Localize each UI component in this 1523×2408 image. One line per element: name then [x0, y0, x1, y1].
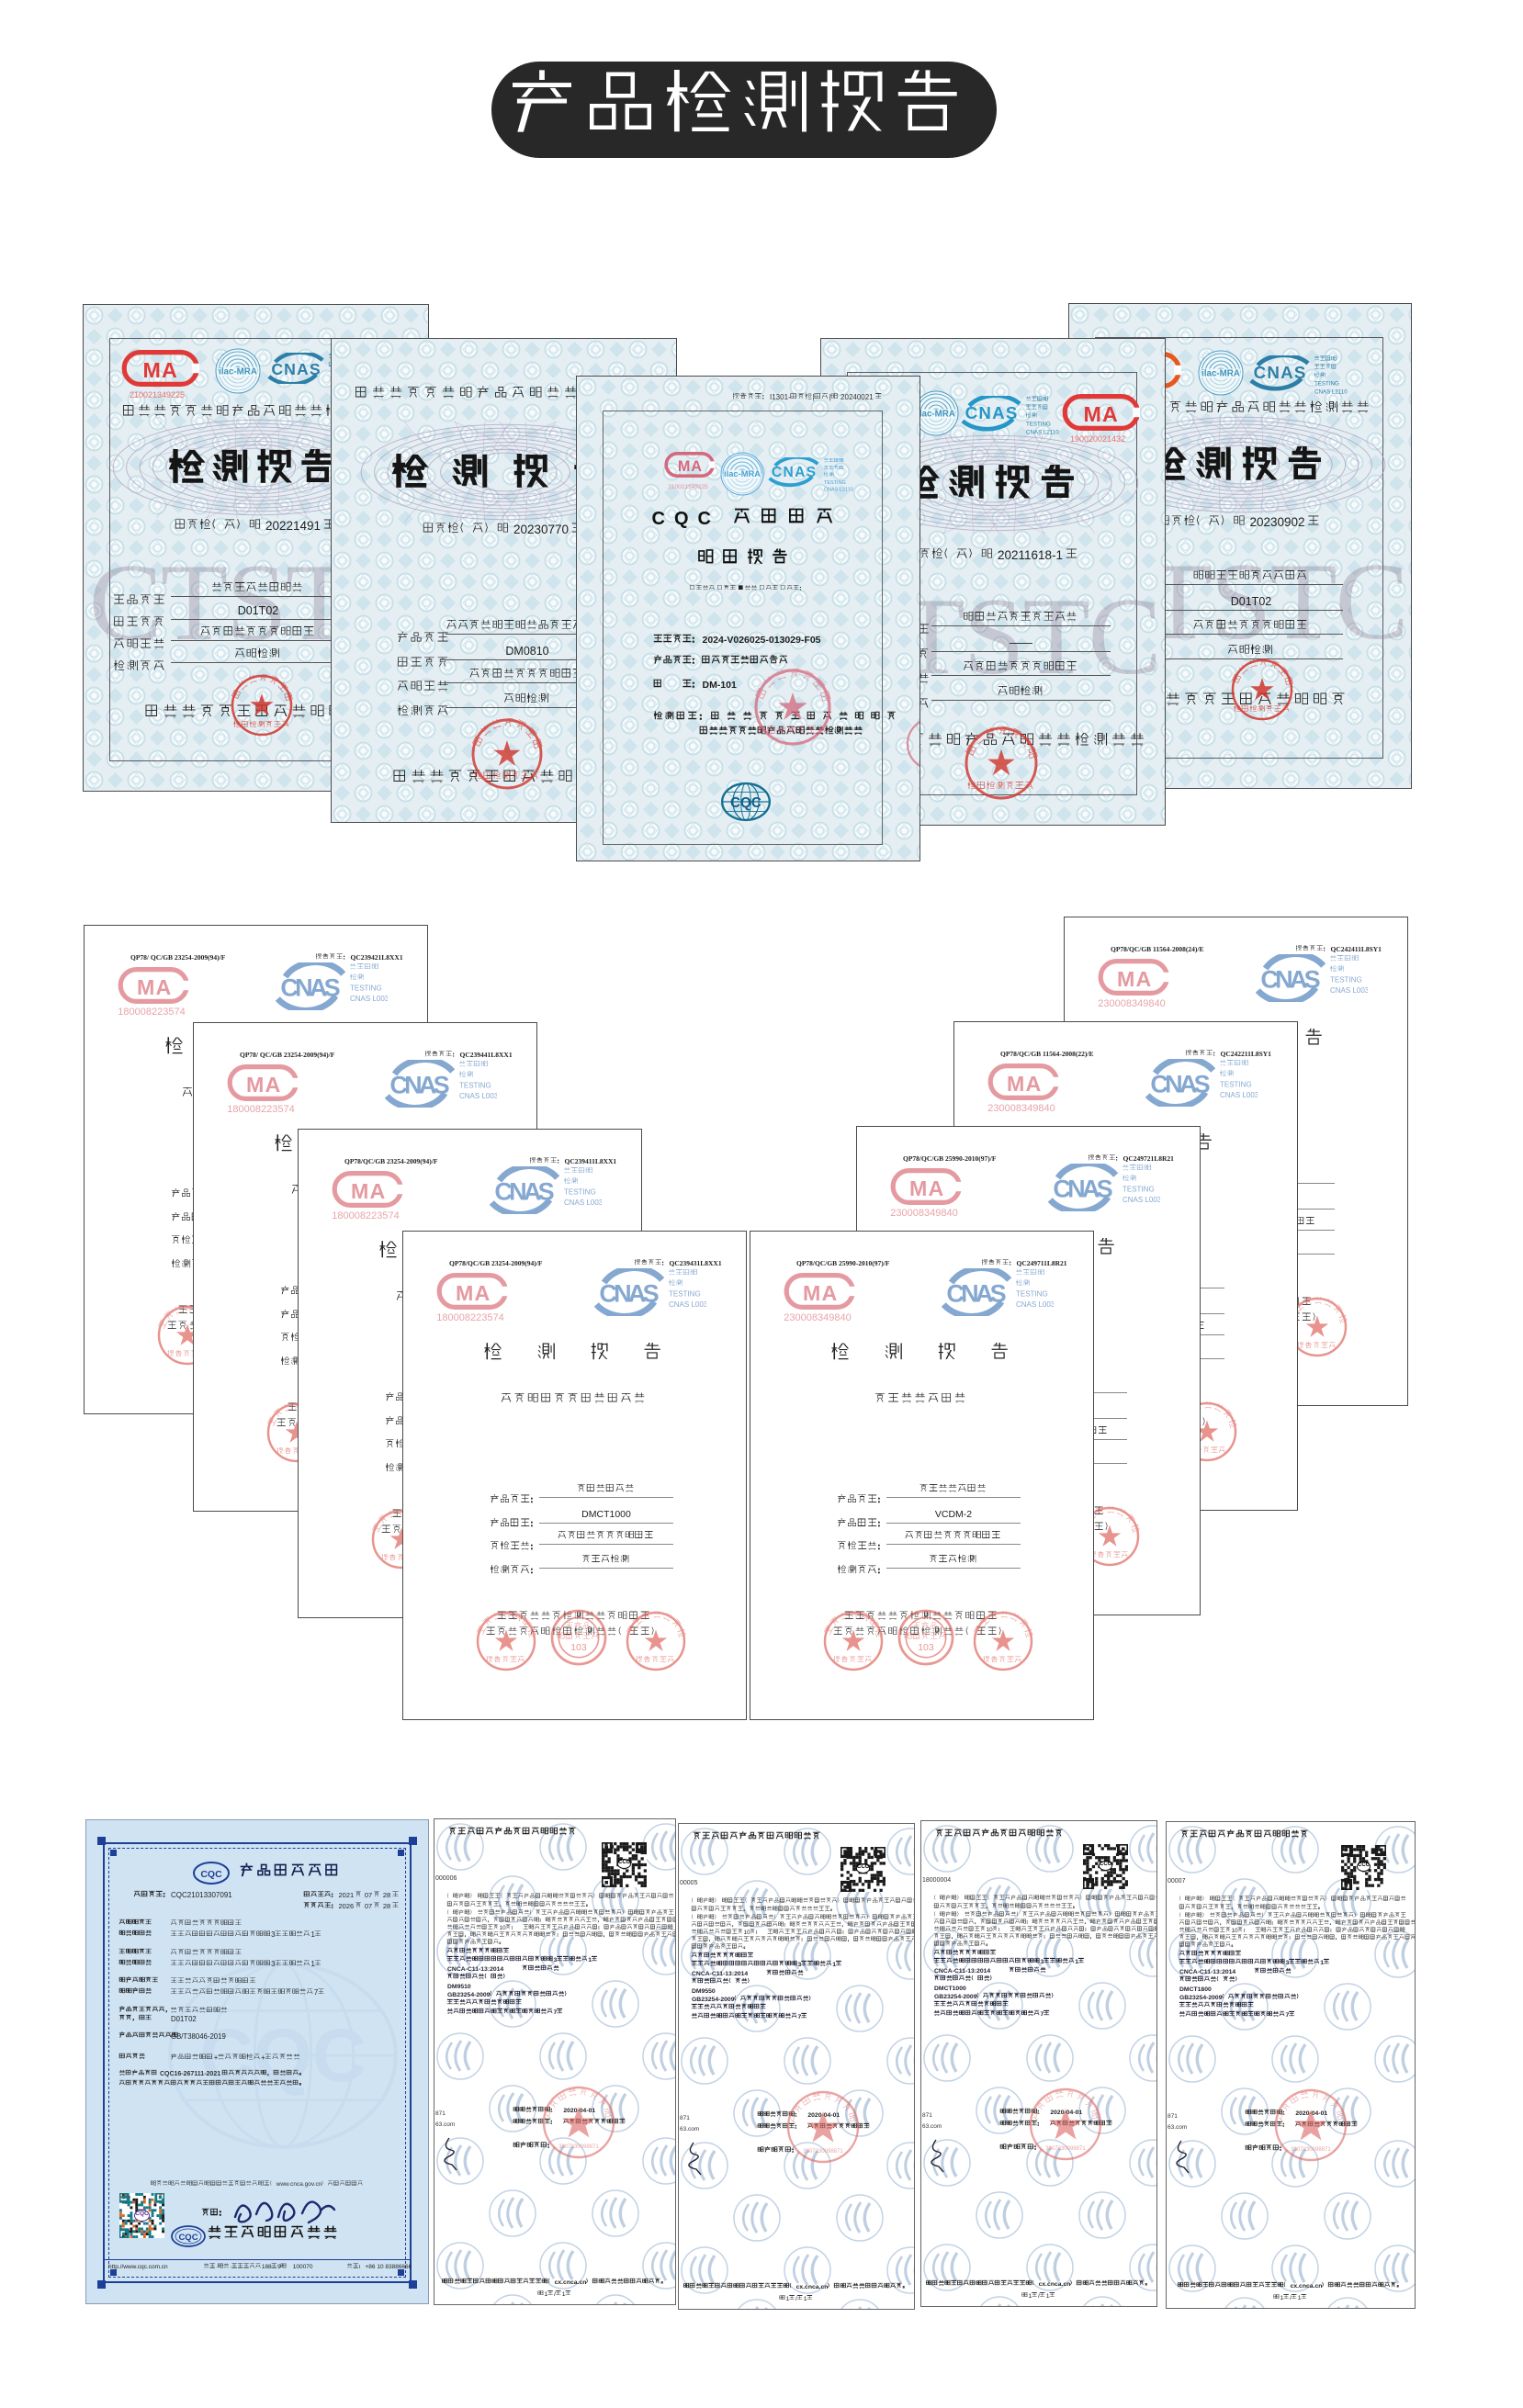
svg-text:180008223574: 180008223574 — [332, 1210, 399, 1221]
svg-text:中国认可: 中国认可 — [564, 1167, 593, 1175]
svg-text:TESTING: TESTING — [1026, 422, 1051, 427]
svg-text:MA: MA — [137, 975, 172, 999]
svg-text:检测: 检测 — [1123, 1174, 1137, 1182]
svg-text:230008349840: 230008349840 — [784, 1312, 851, 1323]
svg-text:MA: MA — [803, 1281, 838, 1305]
svg-text:检测: 检测 — [1025, 412, 1037, 419]
svg-text:检测: 检测 — [350, 973, 365, 981]
svg-text:TESTING: TESTING — [459, 1082, 491, 1089]
svg-text:MA: MA — [456, 1281, 491, 1305]
svg-text:CNAS L2110: CNAS L2110 — [1314, 388, 1348, 394]
svg-text:检测: 检测 — [1314, 372, 1326, 378]
svg-text:CNAS L0036: CNAS L0036 — [1330, 986, 1368, 994]
svg-text:检测: 检测 — [1220, 1069, 1235, 1077]
svg-text:103: 103 — [570, 1642, 587, 1653]
svg-text:210021349225: 210021349225 — [130, 390, 185, 399]
svg-text:CNAS: CNAS — [280, 973, 340, 1001]
svg-text:CNAS: CNAS — [1260, 965, 1320, 993]
svg-text:TESTING: TESTING — [669, 1290, 701, 1298]
svg-text:CNAS L0036: CNAS L0036 — [564, 1198, 602, 1206]
svg-text:180008223574: 180008223574 — [118, 1007, 185, 1018]
svg-text:CNAS: CNAS — [1254, 363, 1306, 382]
svg-text:国际互认: 国际互认 — [1314, 364, 1337, 370]
svg-text:3307230098871: 3307230098871 — [1045, 2146, 1086, 2152]
svg-text:TESTING: TESTING — [1314, 381, 1339, 387]
svg-text:TESTING: TESTING — [1220, 1081, 1252, 1088]
svg-text:TESTING: TESTING — [1330, 976, 1362, 984]
svg-text:CNAS: CNAS — [1150, 1070, 1210, 1097]
svg-text:中国认可: 中国认可 — [1123, 1165, 1152, 1172]
svg-text:中国认可: 中国认可 — [1220, 1060, 1249, 1067]
svg-text:中国认可: 中国认可 — [350, 963, 379, 971]
svg-text:试验专用章: 试验专用章 — [904, 1631, 948, 1641]
svg-text:检测: 检测 — [1330, 964, 1345, 973]
svg-text:中国认可: 中国认可 — [1314, 355, 1337, 362]
svg-text:3307230098871: 3307230098871 — [558, 2144, 599, 2150]
svg-text:检测: 检测 — [564, 1176, 579, 1185]
svg-text:CNAS L0036: CNAS L0036 — [1016, 1300, 1054, 1308]
svg-text:CNAS: CNAS — [389, 1071, 449, 1098]
svg-text:MA: MA — [351, 1179, 386, 1203]
svg-text:3307230098871: 3307230098871 — [1291, 2147, 1331, 2153]
svg-text:检验检测专用章: 检验检测专用章 — [757, 726, 828, 737]
svg-text:MA: MA — [1007, 1072, 1042, 1096]
svg-text:MA: MA — [678, 458, 703, 475]
svg-text:210021349225: 210021349225 — [668, 484, 708, 490]
svg-text:CNAS: CNAS — [599, 1279, 659, 1307]
svg-text:检测: 检测 — [1016, 1278, 1031, 1287]
svg-text:ilac-MRA: ilac-MRA — [219, 366, 257, 377]
svg-text:230008349840: 230008349840 — [890, 1208, 957, 1219]
svg-text:ilac-MRA: ilac-MRA — [917, 409, 955, 419]
svg-text:国际互认: 国际互认 — [1025, 404, 1049, 411]
svg-text:检验检测专用章: 检验检测专用章 — [475, 771, 540, 782]
svg-text:103: 103 — [918, 1642, 934, 1653]
svg-text:试验专用章: 试验专用章 — [557, 1631, 601, 1641]
svg-text:中国认可: 中国认可 — [669, 1269, 698, 1277]
svg-text:MA: MA — [142, 358, 177, 382]
svg-text:CNAS: CNAS — [965, 403, 1018, 422]
svg-text:检验检测专用章: 检验检测专用章 — [1234, 703, 1291, 714]
svg-text:中国认可: 中国认可 — [459, 1061, 489, 1068]
svg-text:检验检测专用章: 检验检测专用章 — [967, 781, 1035, 792]
svg-text:报告专用章: 报告专用章 — [636, 1655, 676, 1665]
svg-text:CNAS: CNAS — [271, 360, 321, 378]
svg-text:TESTING: TESTING — [350, 985, 382, 992]
svg-text:检测: 检测 — [823, 472, 834, 478]
svg-text:MA: MA — [909, 1176, 944, 1200]
svg-text:新产品: 新产品 — [565, 1621, 592, 1631]
svg-text:ilac-MRA: ilac-MRA — [724, 469, 761, 478]
svg-text:CNAS: CNAS — [1053, 1175, 1112, 1202]
svg-text:MA: MA — [1117, 967, 1152, 991]
svg-text:检测: 检测 — [669, 1278, 683, 1287]
svg-text:TESTING: TESTING — [824, 479, 846, 485]
svg-text:报告专用章: 报告专用章 — [983, 1655, 1023, 1665]
svg-text:CNAS L0036: CNAS L0036 — [350, 995, 388, 1002]
svg-text:CNAS L0036: CNAS L0036 — [669, 1300, 706, 1308]
svg-text:中国认可: 中国认可 — [1016, 1269, 1045, 1277]
svg-text:CNAS: CNAS — [772, 465, 816, 480]
svg-text:CNAS: CNAS — [946, 1279, 1006, 1307]
svg-text:中国认可: 中国认可 — [824, 458, 844, 464]
svg-text:中国认可: 中国认可 — [1026, 396, 1049, 402]
svg-text:230008349840: 230008349840 — [987, 1103, 1055, 1114]
svg-text:MA: MA — [246, 1073, 281, 1097]
svg-text:CNAS L0036: CNAS L0036 — [1123, 1196, 1160, 1203]
svg-text:TESTING: TESTING — [564, 1188, 596, 1196]
svg-text:报告专用章: 报告专用章 — [833, 1655, 874, 1665]
svg-text:报告专用章: 报告专用章 — [1297, 1341, 1337, 1351]
svg-text:CNAS L2110: CNAS L2110 — [824, 487, 853, 492]
svg-text:CQC: CQC — [730, 795, 761, 811]
svg-text:230008349840: 230008349840 — [1098, 998, 1165, 1009]
svg-text:国际互认: 国际互认 — [823, 465, 844, 470]
svg-text:180008223574: 180008223574 — [436, 1312, 503, 1323]
svg-text:检测: 检测 — [459, 1070, 474, 1078]
svg-text:180008223574: 180008223574 — [227, 1104, 294, 1115]
svg-text:CQC: CQC — [178, 2233, 197, 2243]
svg-text:报告专用章: 报告专用章 — [486, 1655, 526, 1665]
svg-text:MA: MA — [1083, 402, 1118, 426]
svg-text:ilac-MRA: ilac-MRA — [1201, 368, 1240, 378]
svg-text:中国认可: 中国认可 — [1330, 955, 1359, 962]
svg-text:TESTING: TESTING — [1016, 1290, 1048, 1298]
svg-text:报告专用章: 报告专用章 — [1089, 1550, 1130, 1560]
svg-text:CQC: CQC — [200, 1869, 222, 1880]
svg-text:新产品: 新产品 — [912, 1621, 939, 1631]
svg-text:CNAS L0036: CNAS L0036 — [459, 1092, 497, 1099]
svg-text:CNAS: CNAS — [494, 1177, 554, 1205]
svg-text:3307230098871: 3307230098871 — [803, 2149, 843, 2155]
svg-text:CNAS L0036: CNAS L0036 — [1220, 1091, 1258, 1098]
svg-text:检验检测专用章: 检验检测专用章 — [233, 719, 290, 729]
svg-text:TESTING: TESTING — [1123, 1186, 1155, 1193]
